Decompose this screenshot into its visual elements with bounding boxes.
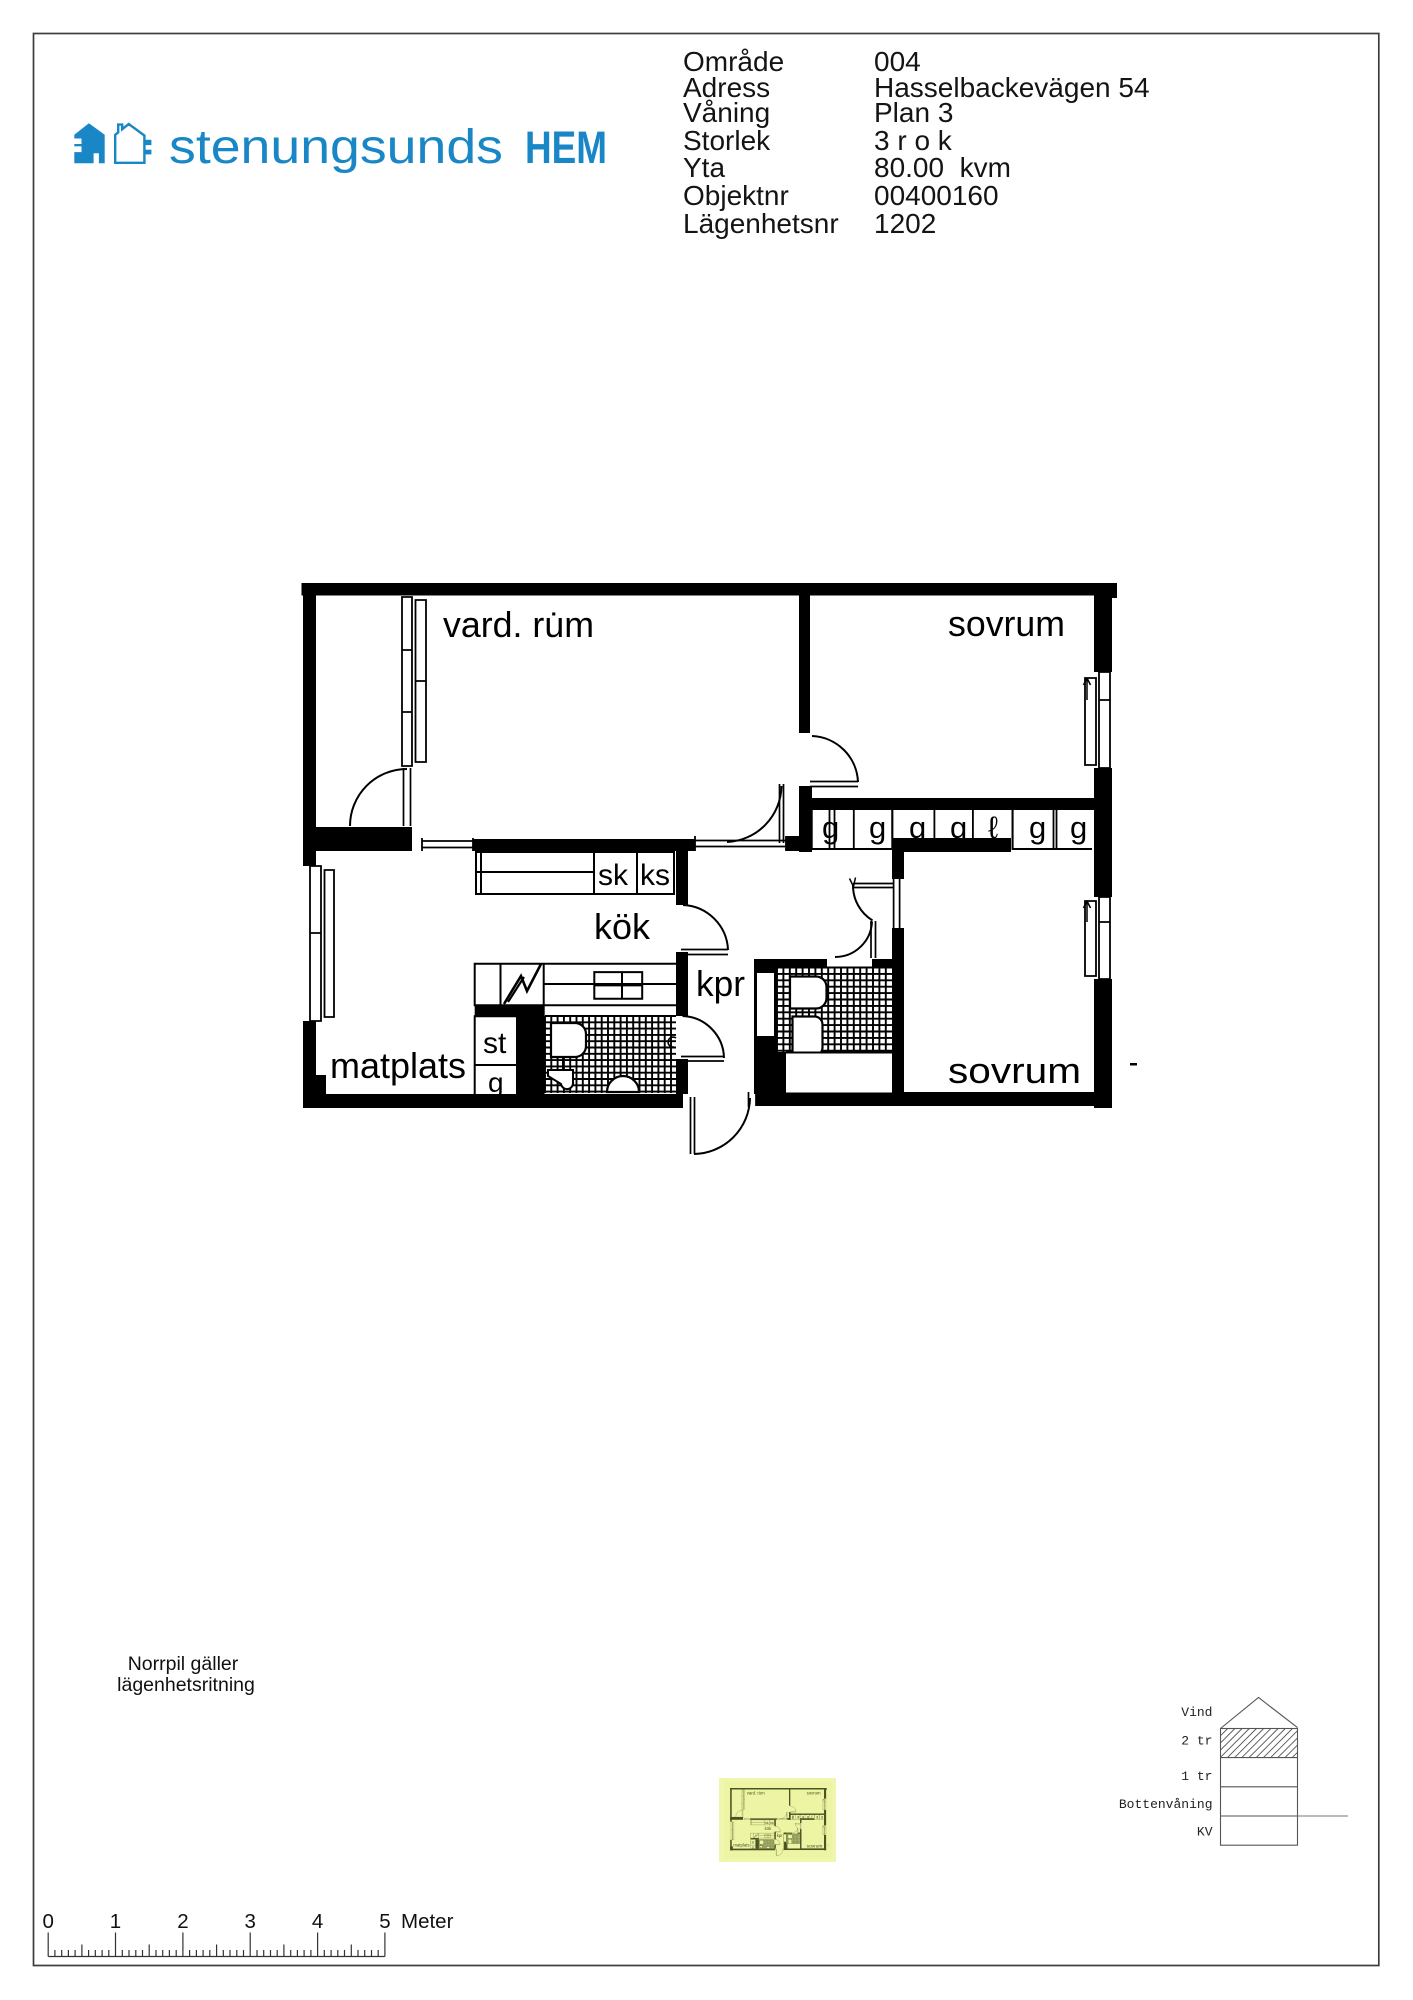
svg-text:stenungsunds: stenungsunds — [169, 121, 503, 174]
svg-text:5: 5 — [379, 1910, 390, 1933]
svg-text:Bottenvåning: Bottenvåning — [1119, 1797, 1213, 1812]
svg-text:KV: KV — [1197, 1825, 1213, 1840]
svg-text:Meter: Meter — [401, 1910, 454, 1933]
svg-text:Lägenhetsnr: Lägenhetsnr — [683, 208, 839, 239]
svg-text:Plan 3: Plan 3 — [874, 97, 953, 128]
svg-text:Vind: Vind — [1181, 1705, 1212, 1720]
svg-text:4: 4 — [312, 1910, 323, 1933]
svg-text:00400160: 00400160 — [874, 180, 999, 211]
svg-text:Objektnr: Objektnr — [683, 180, 789, 211]
svg-text:Våning: Våning — [683, 97, 770, 128]
svg-text:HEM: HEM — [525, 122, 607, 173]
svg-text:2 tr: 2 tr — [1181, 1734, 1212, 1749]
svg-text:Norrpil gäller: Norrpil gäller — [128, 1653, 239, 1675]
svg-text:1 tr: 1 tr — [1181, 1769, 1212, 1784]
svg-text:Yta: Yta — [683, 152, 725, 183]
svg-text:80.00 kvm: 80.00 kvm — [874, 152, 1011, 183]
svg-text:0: 0 — [42, 1910, 53, 1933]
svg-text:lägenhetsritning: lägenhetsritning — [117, 1674, 255, 1696]
svg-text:1: 1 — [110, 1910, 121, 1933]
svg-text:3: 3 — [244, 1910, 255, 1933]
svg-text:2: 2 — [177, 1910, 188, 1933]
svg-text:1202: 1202 — [874, 208, 936, 239]
